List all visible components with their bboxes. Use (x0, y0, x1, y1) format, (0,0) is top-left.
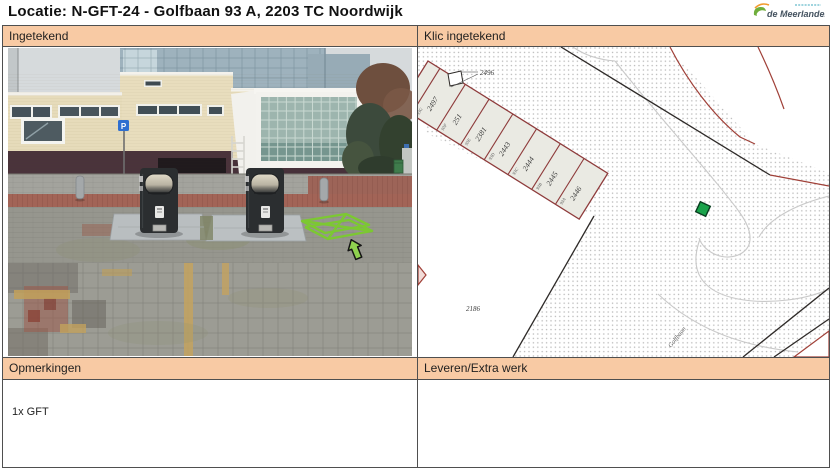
parking-sign-letter: P (121, 122, 127, 131)
container-drum (251, 174, 279, 194)
container-drum (145, 174, 173, 194)
panel-header-opmerkingen: Opmerkingen (3, 358, 417, 379)
area-label-2186: 2186 (466, 305, 481, 313)
waste-container (241, 168, 289, 238)
leveren-extra-werk-cell (418, 380, 829, 467)
bollard (75, 176, 85, 202)
green-bin (394, 160, 403, 173)
meerlanden-logo: de Meerlanden (751, 2, 825, 23)
location-sheet-table: Ingetekend Klic ingetekend (2, 25, 830, 468)
bollard (319, 178, 329, 204)
map-cell: 2497 251 2381 2443 2444 2445 2446 93H 93… (418, 47, 829, 357)
panel-header-ingetekend: Ingetekend (3, 26, 417, 46)
area-label-2496: 2496 (480, 69, 495, 77)
logo-text: de Meerlanden (767, 9, 825, 19)
opmerkingen-content: 1x GFT (12, 406, 49, 418)
photo-cell: P (3, 47, 417, 357)
opmerkingen-cell: 1x GFT (3, 380, 417, 467)
panel-header-klic-ingetekend: Klic ingetekend (418, 26, 829, 46)
map-notch (448, 71, 463, 86)
site-photo: P (8, 48, 412, 356)
waste-container (135, 168, 183, 238)
page-title: Locatie: N-GFT-24 - Golfbaan 93 A, 2203 … (8, 3, 403, 20)
klic-map: 2497 251 2381 2443 2444 2445 2446 93H 93… (418, 47, 829, 357)
pavement (8, 174, 412, 356)
panel-header-leveren-extra-werk: Leveren/Extra werk (418, 358, 829, 379)
